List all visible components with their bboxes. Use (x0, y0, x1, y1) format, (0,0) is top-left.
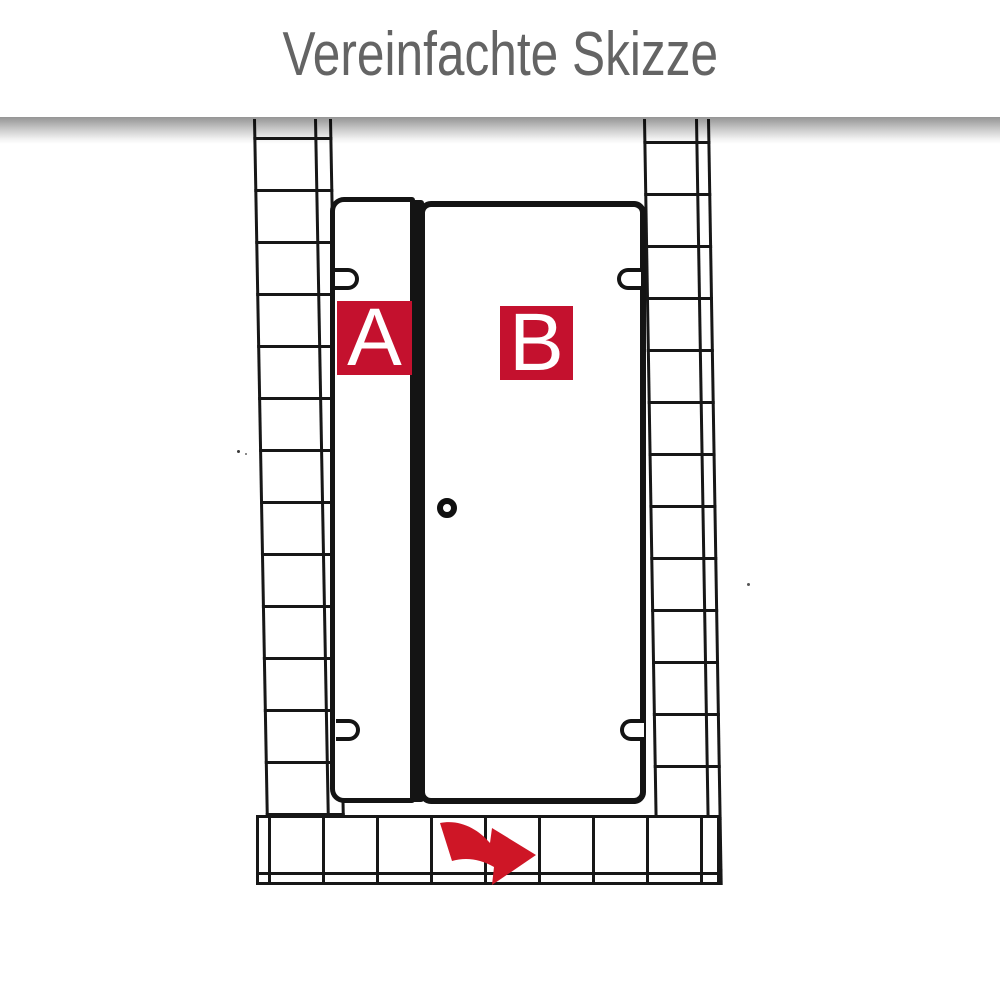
divider-gradient-band (0, 117, 1000, 144)
hinge-bracket-b-top (617, 268, 641, 290)
tiled-wall-right (643, 119, 723, 885)
page-title: Vereinfachte Skizze (0, 22, 1000, 88)
panel-label-b-text: B (509, 302, 564, 384)
swing-arrow-icon (430, 815, 540, 890)
scan-speck (245, 453, 247, 455)
panel-label-b: B (500, 306, 573, 380)
hinge-bracket-a-bottom (336, 719, 360, 741)
panel-label-a: A (337, 301, 412, 375)
product-sketch-page: Vereinfachte Skizze A B (0, 0, 1000, 1000)
page-title-text: Vereinfachte Skizze (282, 22, 718, 88)
panel-divider-profile (410, 200, 424, 802)
swing-arrow-shape (440, 822, 536, 885)
hinge-bracket-b-bottom (620, 719, 644, 741)
scan-speck (237, 450, 240, 453)
scan-speck (747, 583, 750, 586)
door-knob (437, 498, 457, 518)
panel-label-a-text: A (347, 297, 402, 379)
hinge-bracket-a-top (335, 268, 359, 290)
